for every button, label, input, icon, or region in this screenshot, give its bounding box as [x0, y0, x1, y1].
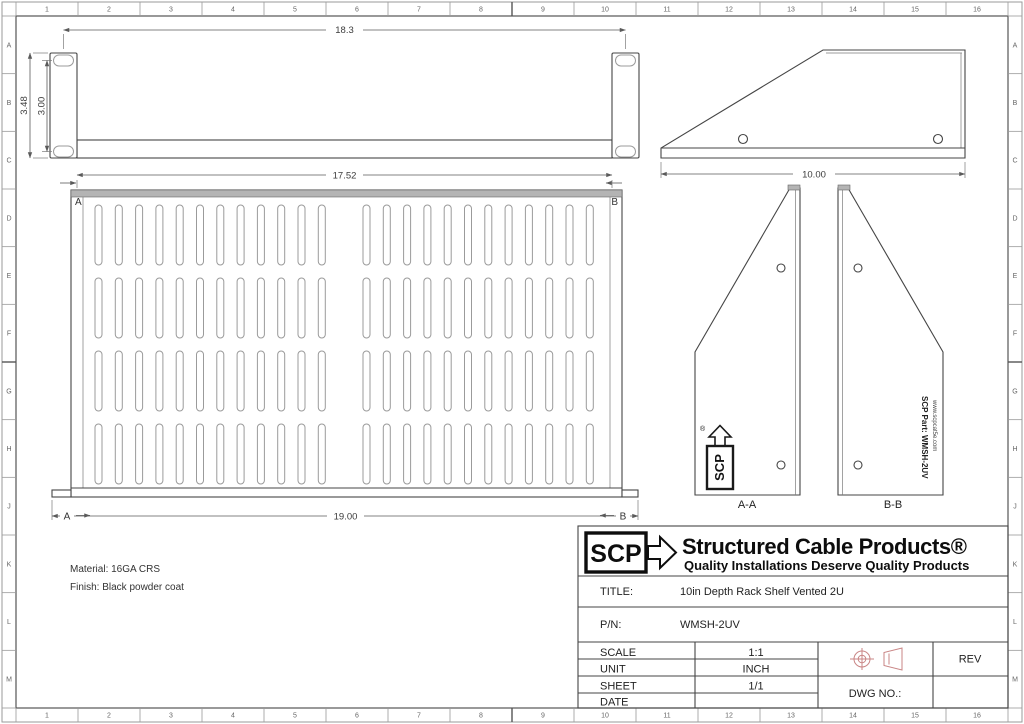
grid-row-label: H [1012, 446, 1017, 453]
grid-col-label: 11 [663, 7, 670, 14]
vent-slot [257, 205, 264, 265]
vent-slot [546, 278, 553, 338]
vent-slot [485, 278, 492, 338]
plan-view: A B 17.52 19.00 A B [52, 170, 638, 523]
vent-slot [237, 205, 244, 265]
grid-row-label: A [1013, 42, 1018, 49]
grid-col-label: 10 [601, 7, 609, 14]
vent-slot [586, 205, 593, 265]
vent-slot [156, 424, 163, 484]
grid-col-label: 8 [479, 713, 483, 720]
vent-slot [257, 351, 264, 411]
vent-slot [525, 205, 532, 265]
vent-slot [197, 205, 204, 265]
grid-row-label: F [1013, 331, 1017, 338]
vent-slot [176, 424, 183, 484]
sheet-value: 1/1 [748, 681, 763, 693]
grid-row-label: L [7, 619, 11, 626]
grid-row-label: C [1012, 158, 1017, 165]
grid-col-label: 6 [355, 713, 359, 720]
grid-col-label: 14 [849, 713, 857, 720]
section-b-label: B-B [884, 499, 902, 511]
vent-slot [115, 424, 122, 484]
vent-slot [566, 424, 573, 484]
grid-row-label: G [6, 388, 11, 395]
front-view: 18.3 3.48 3.00 [19, 25, 639, 158]
vent-slot [444, 278, 451, 338]
grid-col-label: 10 [601, 713, 609, 720]
grid-row-label: J [7, 504, 11, 511]
grid-col-label: 13 [787, 7, 795, 14]
vent-slot [505, 278, 512, 338]
vent-slot [586, 351, 593, 411]
front-left-ear [50, 53, 77, 158]
grid-col-label: 2 [107, 7, 111, 14]
vent-slot [278, 424, 285, 484]
pn-label: P/N: [600, 619, 621, 631]
section-a-view: SCP ® A-A [695, 185, 800, 511]
vent-slot [525, 424, 532, 484]
grid-col-label: 3 [169, 7, 173, 14]
vent-slot [465, 351, 472, 411]
grid-col-label: 7 [417, 713, 421, 720]
grid-row-label: K [1013, 561, 1018, 568]
grid-col-label: 6 [355, 7, 359, 14]
section-a-lip-tab [788, 185, 800, 190]
brand-tagline: Quality Installations Deserve Quality Pr… [684, 558, 969, 573]
scp-logo-arrow-icon [648, 537, 676, 568]
dim-text: 18.3 [335, 25, 354, 36]
grid-col-label: 7 [417, 7, 421, 14]
plan-right-foot [622, 490, 638, 497]
scale-value: 1:1 [748, 647, 763, 659]
brand-name: Structured Cable Products® [682, 534, 967, 559]
vent-slot [586, 278, 593, 338]
vent-slot [318, 278, 325, 338]
grid-row-label: M [1012, 677, 1018, 684]
grid-col-label: 2 [107, 713, 111, 720]
vent-slot [485, 205, 492, 265]
grid-row-label: J [1013, 504, 1017, 511]
vent-slot [197, 278, 204, 338]
vent-slot [485, 424, 492, 484]
vent-slot [136, 351, 143, 411]
vent-slot [237, 424, 244, 484]
vent-slot [424, 278, 431, 338]
grid-col-label: 14 [849, 7, 857, 14]
vent-slot [95, 351, 102, 411]
vent-slot [156, 351, 163, 411]
vent-slot [363, 424, 370, 484]
vent-slot [156, 205, 163, 265]
dim-text: 10.00 [802, 170, 826, 181]
cut-label-a: A [64, 512, 71, 523]
vent-slot [404, 424, 411, 484]
vent-slot [217, 351, 224, 411]
mounting-slot [54, 55, 74, 66]
vent-slot [505, 351, 512, 411]
title-block: SCP Structured Cable Products® Quality I… [578, 526, 1008, 709]
vent-slot [363, 205, 370, 265]
vent-slot [197, 424, 204, 484]
mounting-slot [54, 146, 74, 157]
grid-col-label: 1 [45, 713, 49, 720]
grid-col-label: 15 [911, 713, 919, 720]
grid-row-label: B [1013, 100, 1018, 107]
grid-col-label: 9 [541, 7, 545, 14]
vent-slot [485, 351, 492, 411]
vent-slot [424, 205, 431, 265]
grid-col-label: 8 [479, 7, 483, 14]
vent-slot [257, 424, 264, 484]
vent-slot [95, 424, 102, 484]
section-b-lip-tab [838, 185, 850, 190]
vent-slot [257, 278, 264, 338]
plan-corner-label-b: B [611, 197, 618, 208]
vent-slot [383, 205, 390, 265]
section-a-label: A-A [738, 499, 757, 511]
dwg-no-label: DWG NO.: [849, 688, 902, 700]
vent-slot [176, 205, 183, 265]
grid-col-label: 15 [911, 7, 919, 14]
vent-slot [115, 278, 122, 338]
grid-col-label: 5 [293, 713, 297, 720]
notes: Material: 16GA CRS Finish: Black powder … [70, 564, 184, 593]
vent-slot [444, 424, 451, 484]
vent-slot [566, 278, 573, 338]
vent-slot [278, 278, 285, 338]
grid-row-label: E [7, 273, 12, 280]
grid-col-label: 4 [231, 713, 235, 720]
vent-slot [298, 205, 305, 265]
vent-slot [136, 424, 143, 484]
title-value: 10in Depth Rack Shelf Vented 2U [680, 586, 844, 598]
registered-mark: ® [700, 425, 706, 433]
dim-text: 3.00 [37, 97, 48, 116]
dim-18-3: 18.3 [64, 25, 626, 49]
vent-slot [318, 424, 325, 484]
scp-logo-text: SCP [712, 454, 727, 481]
grid-col-label: 12 [725, 713, 733, 720]
vent-slot [217, 205, 224, 265]
plan-front-lip-band [71, 190, 622, 197]
vent-slot [404, 351, 411, 411]
front-shelf-lip [77, 140, 612, 158]
grid-row-label: A [7, 42, 12, 49]
vent-slot [363, 351, 370, 411]
grid-col-label: 5 [293, 7, 297, 14]
cut-label-b: B [620, 512, 627, 523]
dim-10-00: 10.00 [661, 162, 965, 181]
vent-slot [176, 351, 183, 411]
vent-slot [546, 424, 553, 484]
grid-row-label: K [7, 561, 12, 568]
scp-logo: SCP [586, 533, 676, 572]
vent-slot [136, 278, 143, 338]
grid-row-label: M [6, 677, 12, 684]
sheet-label: SHEET [600, 681, 637, 693]
vent-slot [404, 205, 411, 265]
vent-slot [95, 278, 102, 338]
section-b-view: SCP Part: WMSH-2UV www.scpcat5e.com B-B [838, 185, 943, 511]
vent-slot [465, 205, 472, 265]
vent-slot [586, 424, 593, 484]
note-material: Material: 16GA CRS [70, 564, 160, 575]
grid-col-label: 16 [973, 713, 981, 720]
plan-outline [71, 190, 622, 497]
third-angle-projection-icon [850, 648, 902, 670]
vent-slot [217, 424, 224, 484]
vent-slot [383, 278, 390, 338]
vent-slot [404, 278, 411, 338]
vent-slot [525, 278, 532, 338]
vent-slot [217, 278, 224, 338]
vent-slot [465, 424, 472, 484]
grid-row-label: E [1013, 273, 1018, 280]
vent-slot [115, 205, 122, 265]
pn-value: WMSH-2UV [680, 619, 741, 631]
vent-slot [444, 205, 451, 265]
vent-slot [424, 424, 431, 484]
vent-slot [444, 351, 451, 411]
vent-slot [298, 351, 305, 411]
vent-slot [298, 424, 305, 484]
grid-row-label: B [7, 100, 12, 107]
grid-row-label: L [1013, 619, 1017, 626]
title-label: TITLE: [600, 586, 633, 598]
rev-label: REV [959, 654, 982, 666]
vent-slot [505, 424, 512, 484]
plan-corner-label-a: A [75, 197, 82, 208]
scp-logo-text: SCP [590, 540, 641, 568]
vent-slot [546, 205, 553, 265]
unit-label: UNIT [600, 664, 626, 676]
vent-slot [298, 278, 305, 338]
grid-row-label: D [6, 215, 11, 222]
dim-19-00: 19.00 A B [52, 500, 638, 523]
vent-slot [383, 351, 390, 411]
grid-col-label: 16 [973, 7, 981, 14]
vent-slot [237, 278, 244, 338]
vent-slot [505, 205, 512, 265]
dim-text: 3.48 [19, 96, 30, 115]
vent-slot [465, 278, 472, 338]
vent-slot [546, 351, 553, 411]
mounting-slot [616, 55, 636, 66]
vent-slot [156, 278, 163, 338]
drawing-sheet: 1122334455667788991010111112121313141415… [0, 0, 1024, 724]
vent-slot [278, 351, 285, 411]
vent-slot [424, 351, 431, 411]
vent-slot [115, 351, 122, 411]
grid-row-label: C [6, 158, 11, 165]
grid-col-label: 4 [231, 7, 235, 14]
grid-col-label: 1 [45, 7, 49, 14]
front-right-ear [612, 53, 639, 158]
grid-col-label: 9 [541, 713, 545, 720]
scale-label: SCALE [600, 647, 636, 659]
vent-slot [525, 351, 532, 411]
vent-slot [278, 205, 285, 265]
grid-row-label: H [6, 446, 11, 453]
dim-text: 19.00 [334, 512, 358, 523]
sidepanel-url-text: www.scpcat5e.com [931, 399, 937, 451]
vent-slot [176, 278, 183, 338]
vent-slot [95, 205, 102, 265]
side-view: 10.00 [661, 50, 965, 181]
vent-slot [318, 351, 325, 411]
sidepanel-part-text: SCP Part: WMSH-2UV [920, 396, 929, 479]
vent-slot [566, 351, 573, 411]
grid-row-label: D [1012, 215, 1017, 222]
grid-row-label: F [7, 331, 11, 338]
vent-slot [136, 205, 143, 265]
vent-slot [566, 205, 573, 265]
dim-17-52: 17.52 [77, 170, 612, 188]
vent-slot [318, 205, 325, 265]
dim-text: 17.52 [333, 171, 357, 182]
grid-col-label: 13 [787, 713, 795, 720]
side-outline [661, 50, 965, 158]
grid-row-label: G [1012, 388, 1017, 395]
unit-value: INCH [743, 664, 770, 676]
vent-slot [237, 351, 244, 411]
plan-left-foot [52, 490, 71, 497]
vent-slot [383, 424, 390, 484]
date-label: DATE [600, 697, 629, 709]
grid-col-label: 12 [725, 7, 733, 14]
grid-col-label: 3 [169, 713, 173, 720]
vent-slot [363, 278, 370, 338]
mounting-slot [616, 146, 636, 157]
note-finish: Finish: Black powder coat [70, 582, 184, 593]
vent-slot [197, 351, 204, 411]
grid-col-label: 11 [663, 713, 670, 720]
